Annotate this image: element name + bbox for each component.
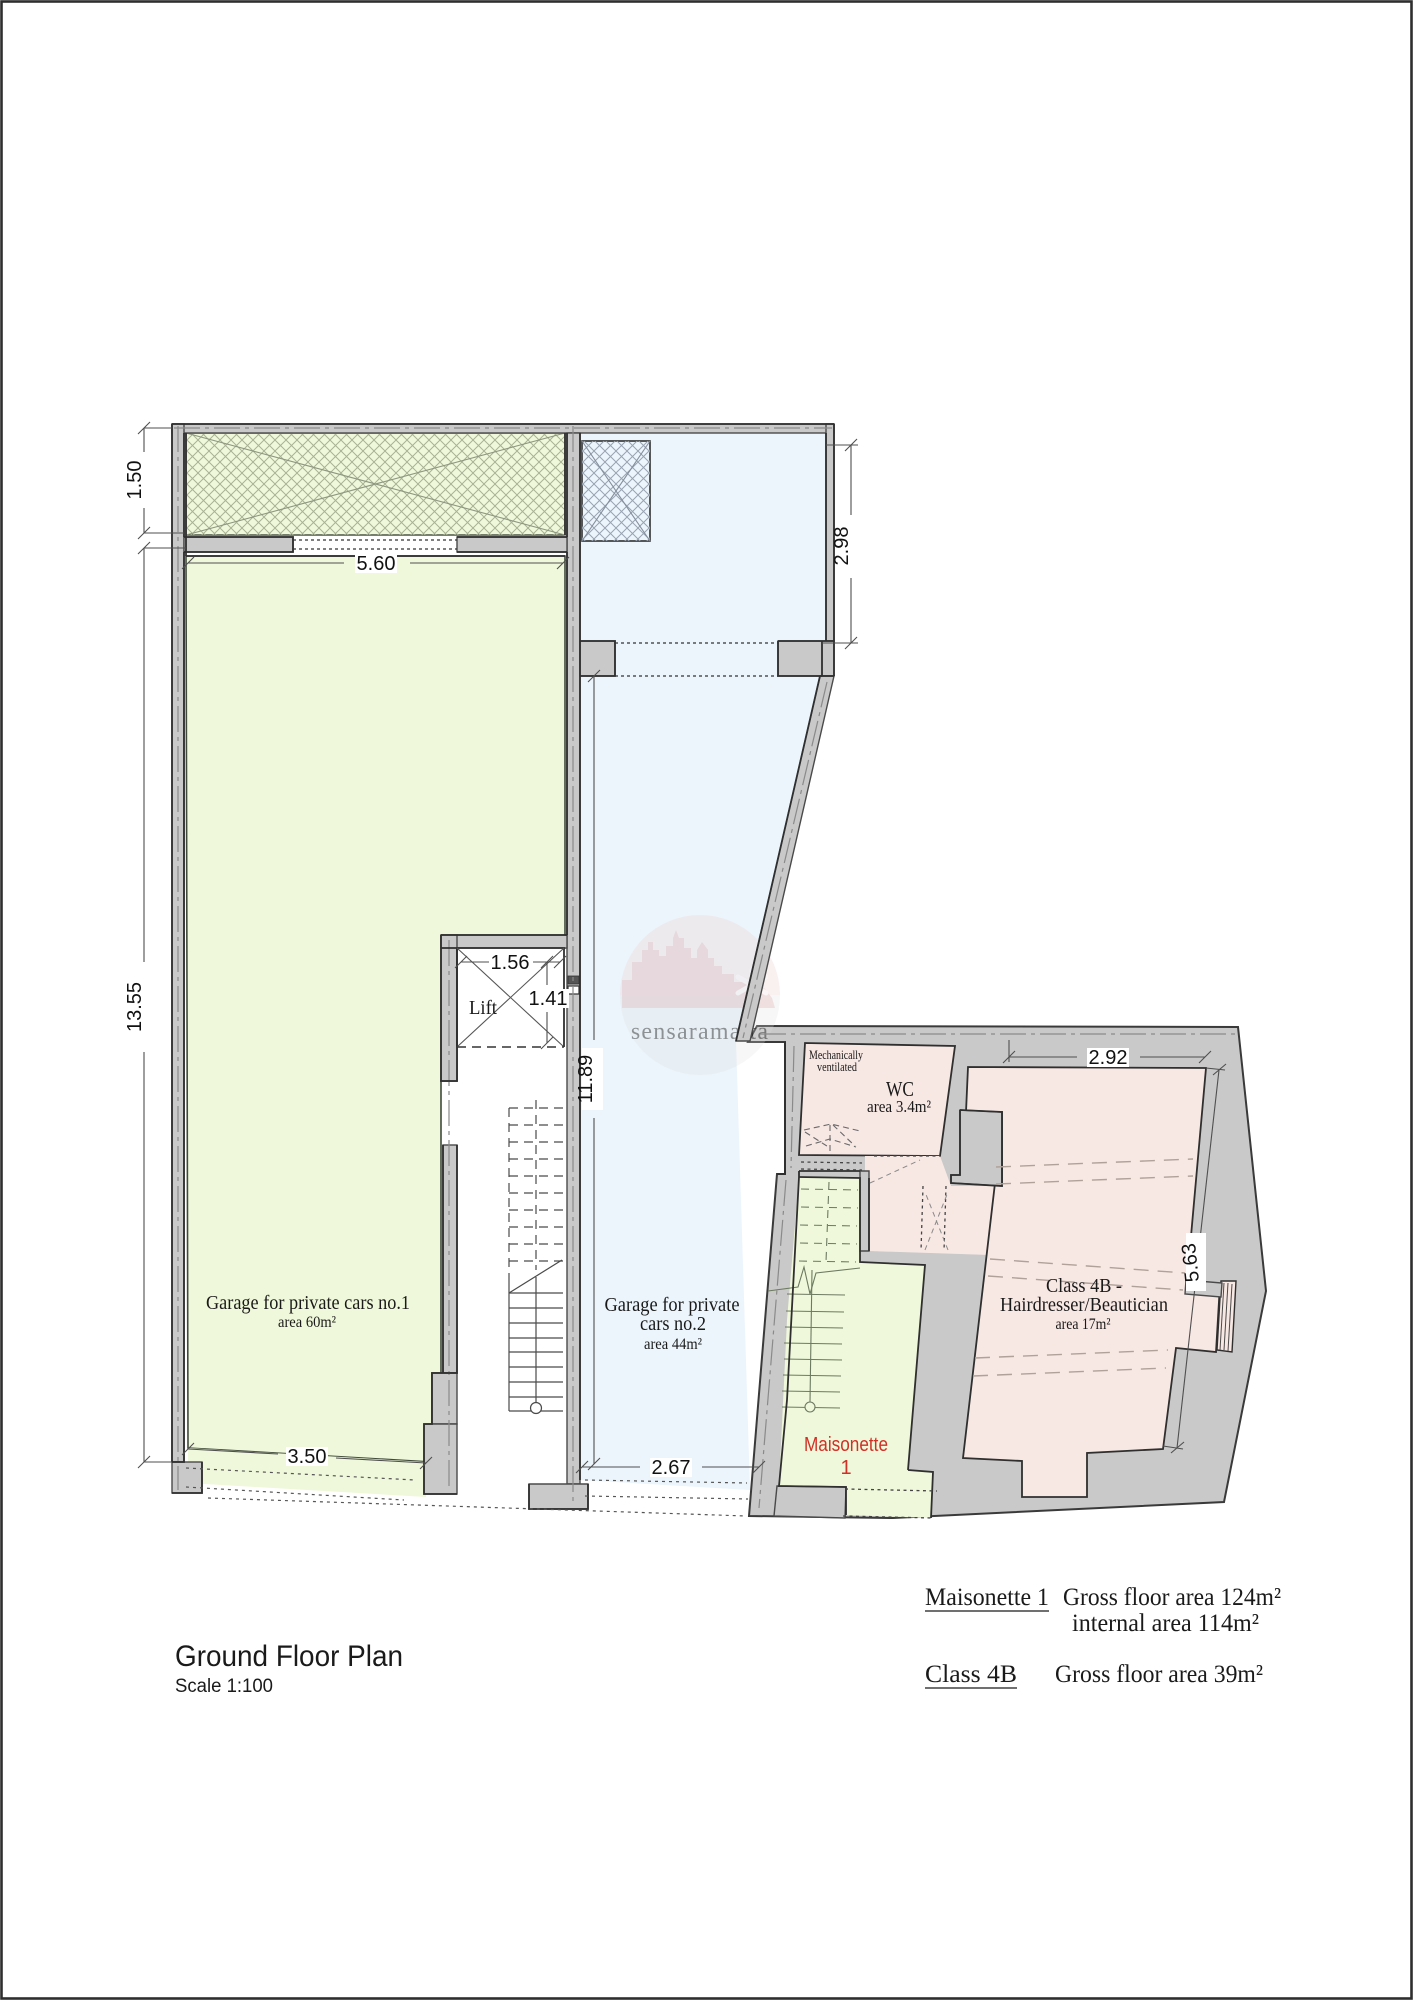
- svg-text:Ground Floor Plan: Ground Floor Plan: [175, 1640, 403, 1673]
- svg-text:Scale 1:100: Scale 1:100: [175, 1676, 273, 1697]
- svg-text:2.92: 2.92: [1089, 1047, 1128, 1069]
- svg-text:Maisonette: Maisonette: [804, 1434, 888, 1456]
- svg-text:area 17m²: area 17m²: [1056, 1316, 1111, 1333]
- svg-text:Gross floor area 39m²: Gross floor area 39m²: [1055, 1661, 1263, 1688]
- svg-text:Gross floor area 124m²: Gross floor area 124m²: [1063, 1584, 1281, 1611]
- svg-text:1: 1: [840, 1457, 851, 1479]
- svg-text:area 3.4m²: area 3.4m²: [867, 1097, 931, 1116]
- svg-text:Hairdresser/Beautician: Hairdresser/Beautician: [1000, 1294, 1168, 1316]
- svg-text:5.60: 5.60: [357, 553, 396, 575]
- svg-text:3.50: 3.50: [288, 1446, 327, 1468]
- svg-text:Lift: Lift: [469, 997, 497, 1019]
- svg-text:11.89: 11.89: [575, 1055, 597, 1104]
- svg-text:13.55: 13.55: [124, 982, 146, 1032]
- svg-text:Class 4B: Class 4B: [925, 1661, 1017, 1688]
- svg-text:area 44m²: area 44m²: [644, 1336, 702, 1353]
- svg-text:Maisonette 1: Maisonette 1: [925, 1584, 1049, 1611]
- svg-text:internal area 114m²: internal area 114m²: [1072, 1610, 1259, 1637]
- svg-text:area 60m²: area 60m²: [278, 1314, 336, 1331]
- svg-text:ventilated: ventilated: [817, 1060, 858, 1074]
- svg-text:2.98: 2.98: [831, 527, 853, 566]
- svg-text:1.56: 1.56: [491, 952, 530, 974]
- svg-text:1.50: 1.50: [124, 461, 146, 500]
- svg-text:5.63: 5.63: [1178, 1242, 1204, 1283]
- svg-text:cars no.2: cars no.2: [640, 1313, 706, 1335]
- svg-text:Garage for private cars no.1: Garage for private cars no.1: [206, 1292, 410, 1314]
- svg-text:1.41: 1.41: [529, 988, 568, 1010]
- svg-text:2.67: 2.67: [652, 1457, 691, 1479]
